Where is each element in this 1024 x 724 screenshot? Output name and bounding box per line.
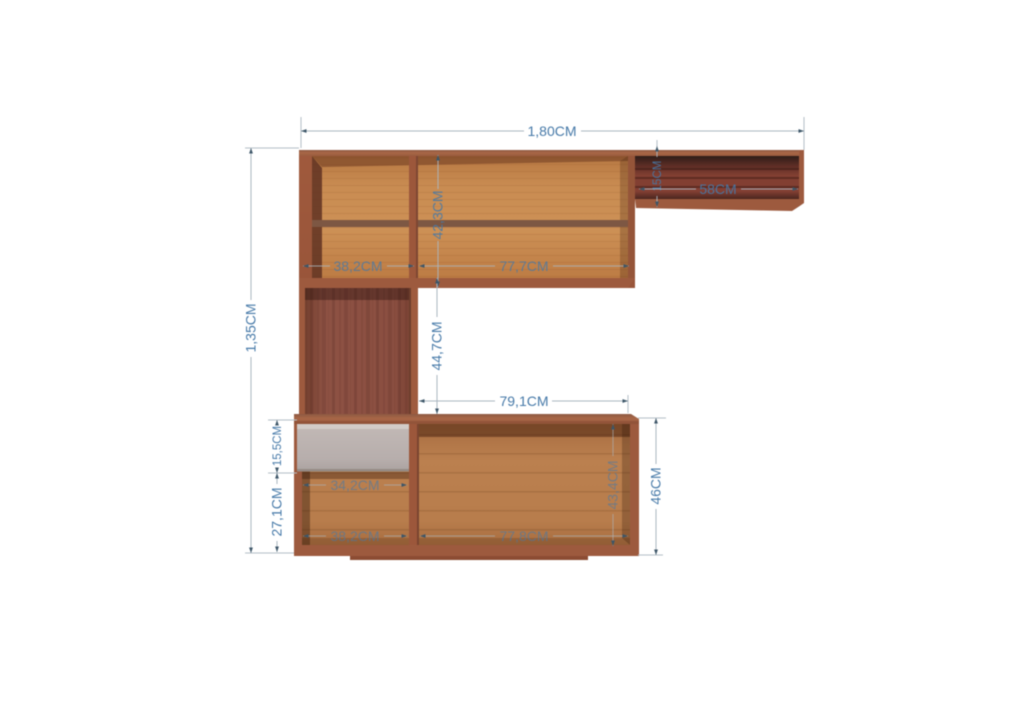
svg-text:38,2CM: 38,2CM: [330, 528, 379, 544]
svg-text:1,80CM: 1,80CM: [527, 123, 576, 139]
svg-text:38,2CM: 38,2CM: [333, 258, 382, 274]
svg-text:34,2CM: 34,2CM: [330, 477, 379, 493]
svg-text:79,1CM: 79,1CM: [499, 393, 548, 409]
svg-text:15,5CM: 15,5CM: [272, 426, 284, 466]
svg-text:42,3CM: 42,3CM: [430, 190, 446, 239]
svg-text:58CM: 58CM: [699, 181, 736, 197]
svg-text:1,35CM: 1,35CM: [243, 303, 259, 352]
svg-text:44,7CM: 44,7CM: [429, 321, 445, 370]
svg-text:27,1CM: 27,1CM: [269, 487, 285, 536]
svg-text:46CM: 46CM: [648, 467, 664, 504]
svg-text:77,7CM: 77,7CM: [499, 258, 548, 274]
svg-text:43,4CM: 43,4CM: [605, 460, 621, 509]
svg-text:15CM: 15CM: [652, 161, 664, 192]
svg-text:77,8CM: 77,8CM: [499, 528, 548, 544]
